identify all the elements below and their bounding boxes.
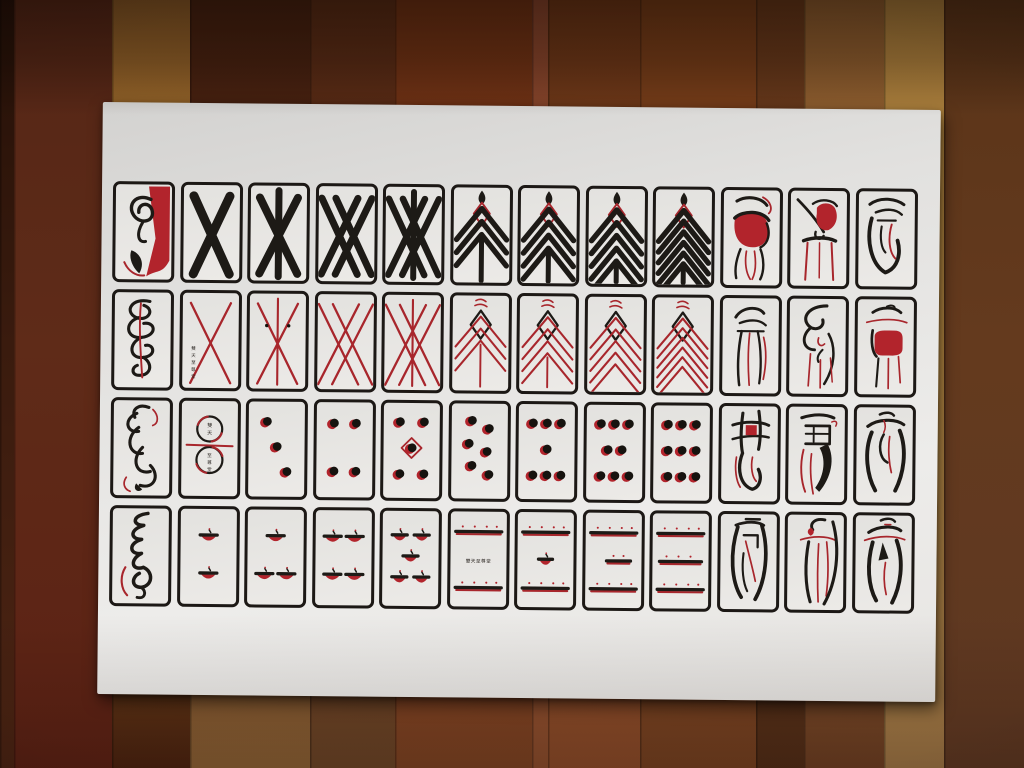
card-art: [385, 187, 442, 283]
card-row4-col11: [784, 512, 847, 614]
card-row2-col10: [719, 295, 782, 397]
card-art: [654, 297, 711, 393]
card-art: [519, 296, 576, 392]
photo-stage: 雙天至尊堂雙天至尊堂雙天至尊堂: [0, 0, 1024, 768]
inscription-text: 雙: [207, 422, 212, 429]
card-art: [788, 407, 845, 503]
card-art: [247, 509, 304, 605]
card-row3-col11: [785, 404, 848, 506]
card-row1-col12: [855, 188, 918, 290]
card-row4-col3: [244, 506, 307, 608]
card-art: [655, 189, 712, 285]
inscription-text: 堂: [190, 373, 195, 380]
card-art: [250, 185, 307, 281]
card-row4-col8: [582, 510, 645, 612]
card-row2-col6: [449, 292, 512, 394]
card-grid: 雙天至尊堂雙天至尊堂雙天至尊堂: [109, 181, 918, 614]
card-art: [383, 403, 440, 499]
card-art: [318, 186, 375, 282]
card-art: [723, 190, 780, 286]
card-art: [586, 405, 643, 501]
card-row4-col12: [851, 512, 914, 614]
card-row4-col5: [379, 508, 442, 610]
card-art: [451, 403, 508, 499]
card-art: 雙天至尊堂: [182, 293, 239, 389]
card-row3-col1: [110, 397, 173, 499]
card-art: [384, 295, 441, 391]
card-sheet-paper: 雙天至尊堂雙天至尊堂雙天至尊堂: [97, 102, 941, 702]
card-art: [180, 509, 237, 605]
card-art: [517, 512, 574, 608]
inscription-text: 雙天至尊堂: [465, 557, 491, 564]
card-row3-col8: [583, 402, 646, 504]
card-art: [114, 292, 171, 388]
card-row3-col4: [313, 399, 376, 501]
card-art: [248, 401, 305, 497]
card-art: [652, 513, 709, 609]
inscription-text: 至: [191, 360, 196, 366]
card-art: [112, 508, 169, 604]
card-row3-col2: 雙天至尊堂: [178, 398, 241, 500]
card-row4-col4: [312, 507, 375, 609]
inscription-text: 天: [207, 431, 212, 437]
card-art: [787, 515, 844, 611]
card-art: [856, 407, 913, 503]
card-row3-col7: [515, 401, 578, 503]
card-row1-col2: [180, 182, 243, 284]
card-row2-col12: [854, 296, 917, 398]
card-art: [317, 294, 374, 390]
inscription-text: 天: [191, 353, 196, 359]
floor-plank-13: [944, 0, 1024, 768]
card-row2-col1: [111, 289, 174, 391]
card-row2-col7: [516, 293, 579, 395]
card-row1-col4: [315, 183, 378, 285]
inscription-text: 至: [207, 453, 212, 459]
card-row4-col6: 雙天至尊堂: [447, 508, 510, 610]
card-art: [316, 402, 373, 498]
card-row1-col5: [382, 184, 445, 286]
card-row1-col9: [652, 186, 715, 288]
card-row4-col2: [177, 506, 240, 608]
card-art: 雙天至尊堂: [450, 511, 507, 607]
card-row2-col11: [786, 296, 849, 398]
card-art: [858, 191, 915, 287]
card-art: [315, 510, 372, 606]
card-art: [249, 293, 306, 389]
card-art: 雙天至尊堂: [181, 401, 238, 497]
card-art: [857, 299, 914, 395]
card-art: [790, 191, 847, 287]
card-row1-col7: [517, 185, 580, 287]
card-art: [585, 513, 642, 609]
inscription-text: 堂: [206, 466, 211, 473]
card-row3-col3: [245, 398, 308, 500]
inscription-text: 尊: [191, 366, 196, 373]
card-art: [720, 514, 777, 610]
card-row3-col5: [380, 400, 443, 502]
card-row1-col1: [112, 181, 175, 283]
card-row4-col10: [716, 511, 779, 613]
card-art: [452, 295, 509, 391]
card-row2-col8: [584, 294, 647, 396]
card-row2-col3: [246, 290, 309, 392]
inscription-text: 雙: [191, 345, 196, 352]
card-row3-col10: [718, 403, 781, 505]
card-row2-col2: 雙天至尊堂: [179, 290, 242, 392]
card-art: [721, 406, 778, 502]
card-row2-col4: [314, 291, 377, 393]
floor-plank-1: [0, 0, 14, 768]
card-row1-col8: [585, 186, 648, 288]
card-art: [115, 184, 172, 280]
card-art: [453, 187, 510, 283]
card-art: [382, 511, 439, 607]
card-row1-col3: [247, 182, 310, 284]
card-row2-col9: [651, 294, 714, 396]
card-row3-col9: [650, 402, 713, 504]
card-art: [518, 404, 575, 500]
card-art: [183, 185, 240, 281]
card-art: [588, 189, 645, 285]
card-row1-col11: [787, 188, 850, 290]
inscription-text: 尊: [207, 459, 212, 466]
card-art: [789, 299, 846, 395]
card-art: [520, 188, 577, 284]
card-row3-col12: [853, 404, 916, 506]
card-art: [855, 515, 912, 611]
card-row4-col7: [514, 509, 577, 611]
card-row2-col5: [381, 292, 444, 394]
card-row4-col1: [109, 505, 172, 607]
card-row1-col6: [450, 184, 513, 286]
card-art: [653, 405, 710, 501]
card-art: [722, 298, 779, 394]
card-art: [587, 297, 644, 393]
card-row4-col9: [649, 510, 712, 612]
card-row3-col6: [448, 400, 511, 502]
card-art: [113, 400, 170, 496]
card-row1-col10: [720, 187, 783, 289]
